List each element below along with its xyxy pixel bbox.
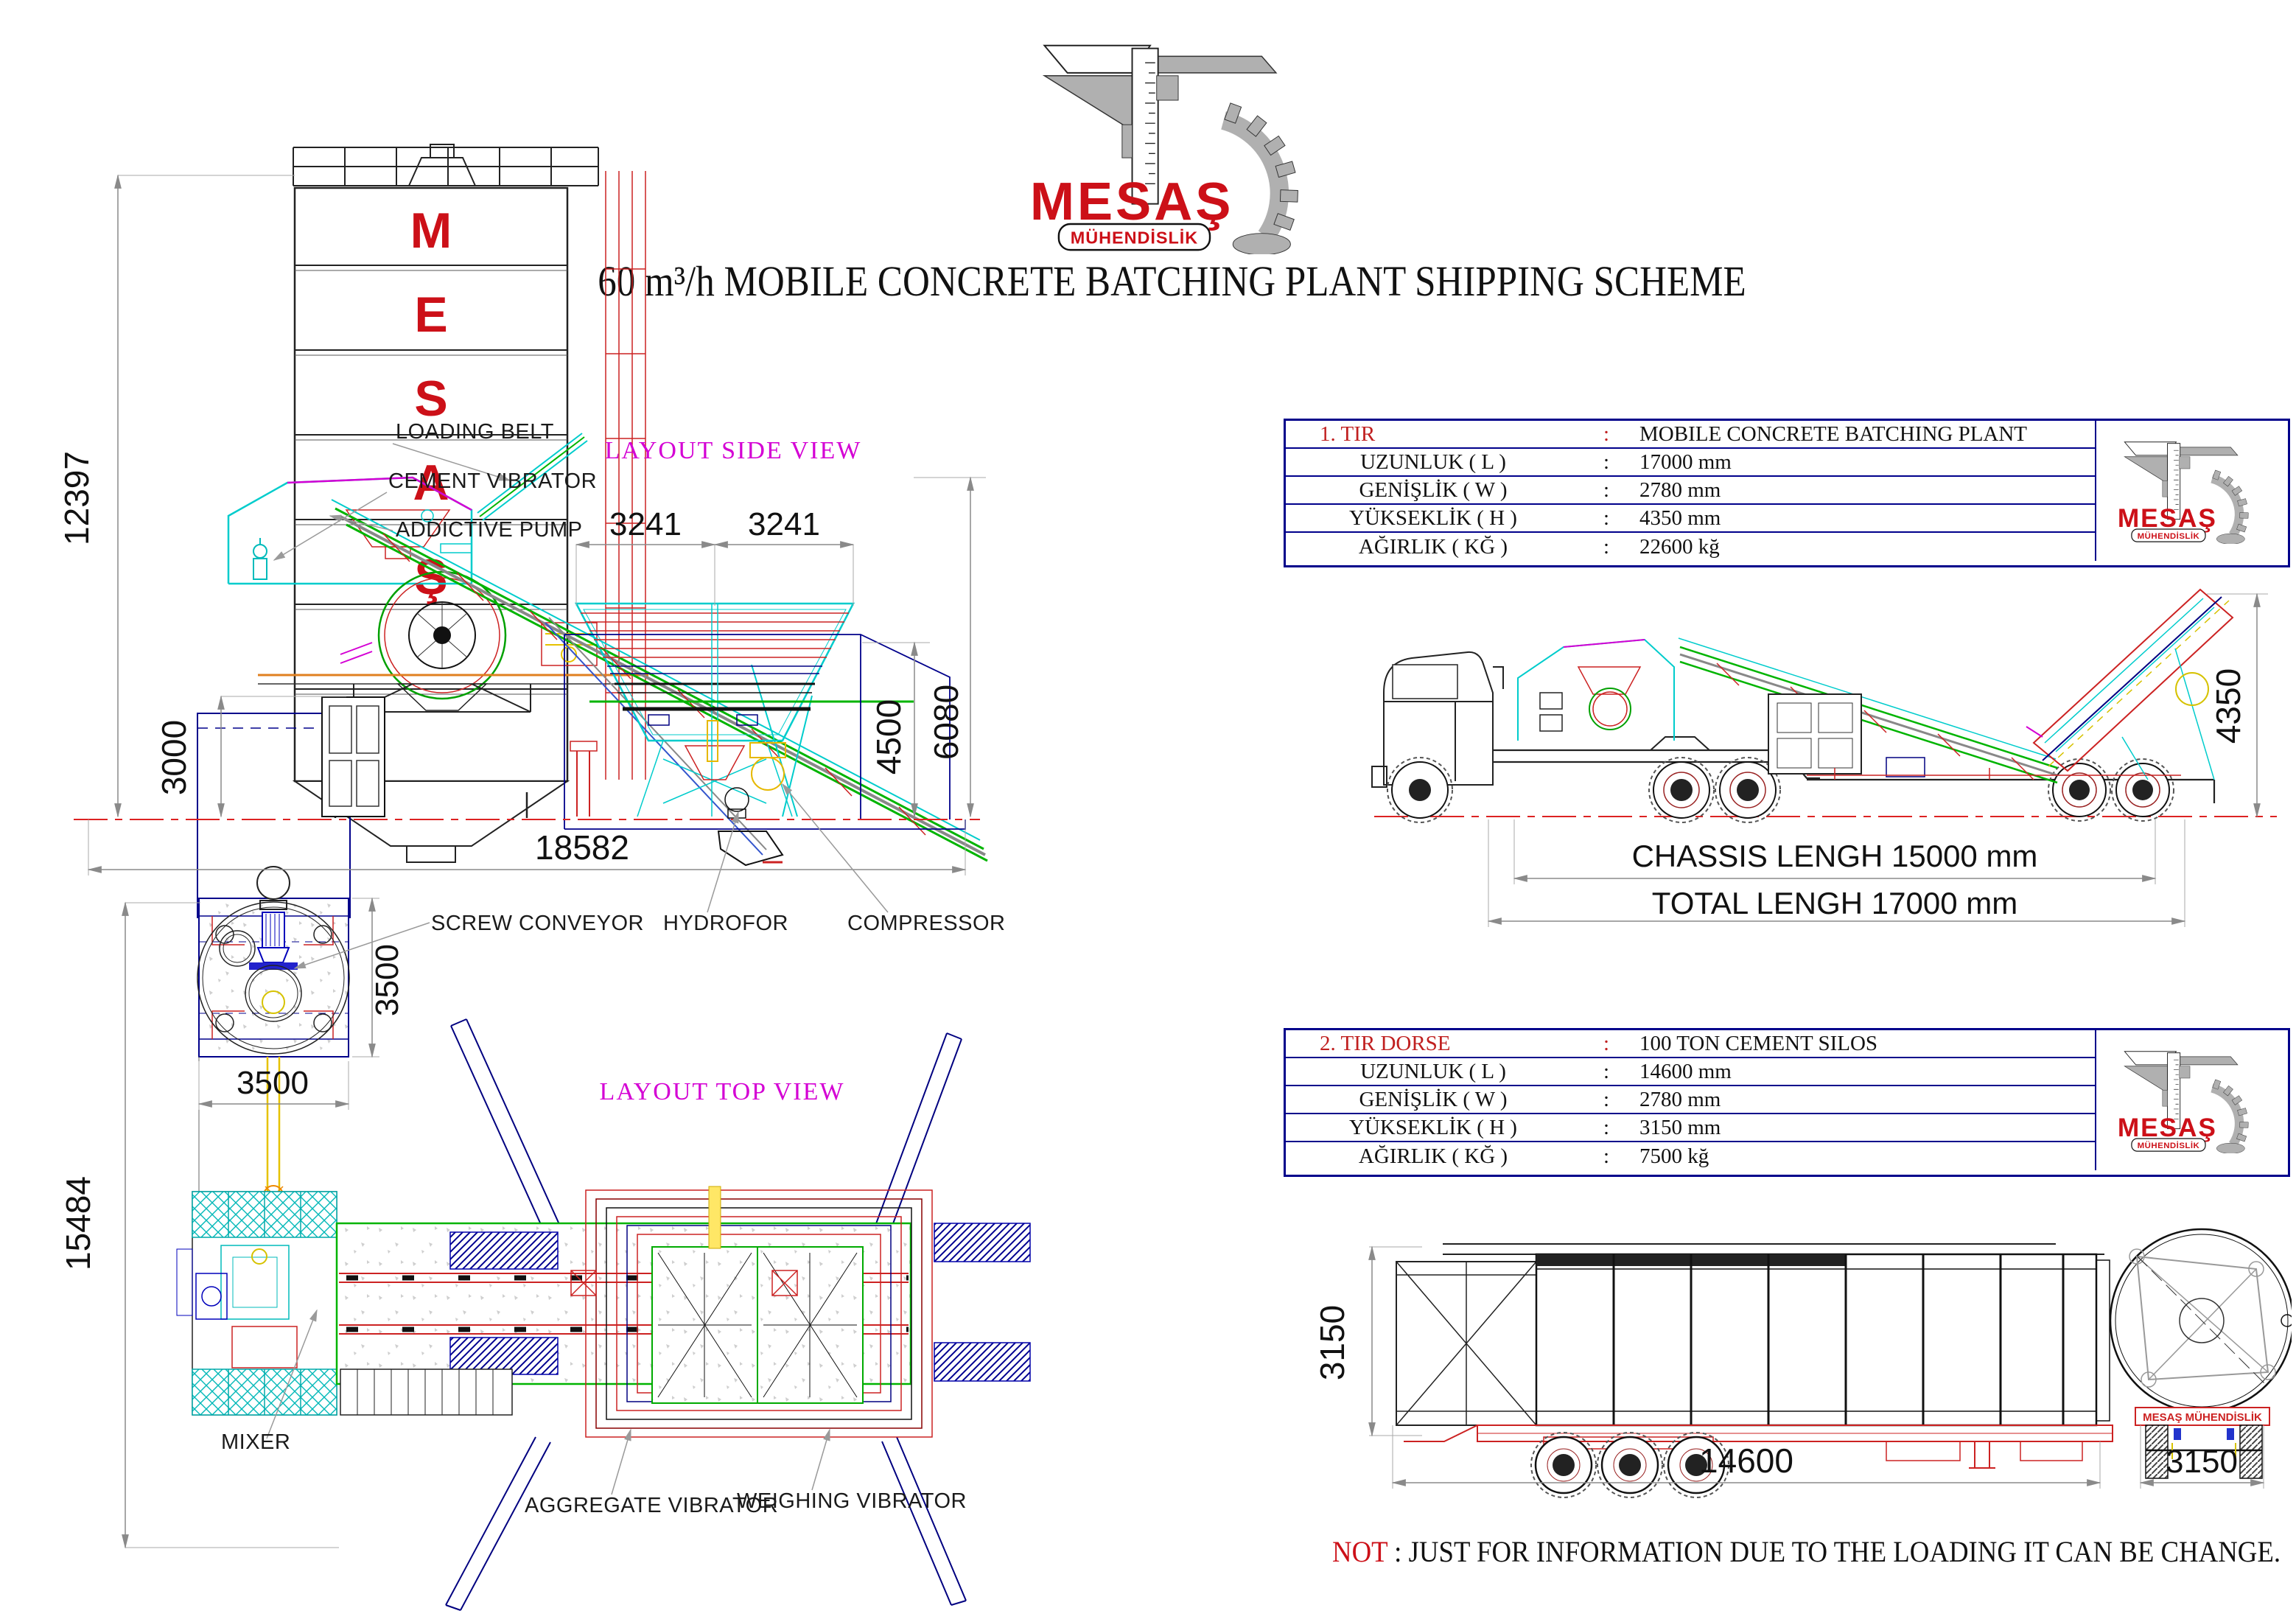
mixer-block-plan: [177, 1192, 337, 1415]
note-separator: :: [1387, 1535, 1409, 1568]
tir1-logo-cell: [2095, 421, 2283, 561]
cement-vibrator-symbol: [253, 538, 267, 579]
company-logo: [1024, 38, 1334, 254]
trailer-brand-text: MESAŞ MÜHENDİSLİK: [2143, 1411, 2262, 1424]
trailer-rear-width-dim: 3150: [2166, 1444, 2238, 1480]
tir1-row0-label: 1. TIR: [1286, 421, 1581, 449]
label-weighing-vibrator: WEIGHING VIBRATOR: [737, 1489, 967, 1513]
label-mixer: MIXER: [221, 1430, 290, 1454]
svg-text:M: M: [410, 203, 452, 259]
svg-text:S: S: [414, 371, 447, 427]
truck-total-dim: TOTAL LENGH 17000 mm: [1652, 886, 2017, 920]
tir2-row0-label: 2. TIR DORSE: [1286, 1030, 1581, 1058]
tir2-row3-label: YÜKSEKLİK ( H ): [1286, 1114, 1581, 1142]
tir1-row3-sep: :: [1581, 505, 1632, 533]
dim-plant-height: 6080: [927, 685, 965, 760]
tir2-row2-value: 2780 mm: [1632, 1086, 2095, 1114]
tir2-logo: [2115, 1048, 2266, 1153]
drawing-sheet: MESAŞ MÜHENDİSLİK 60 m³/h MOBILE CONCRET…: [0, 0, 2296, 1622]
dim-bin-span-right: 3241: [748, 506, 820, 542]
caption-top-view: LAYOUT TOP VIEW: [600, 1078, 845, 1105]
note-text: JUST FOR INFORMATION DUE TO THE LOADING …: [1409, 1535, 2281, 1568]
tir2-row4-label: AĞIRLIK ( KĞ ): [1286, 1142, 1581, 1170]
silo-trailer-side: [1396, 1244, 2113, 1468]
tir2-row3-sep: :: [1581, 1114, 1632, 1142]
dim-pad-width: 3500: [237, 1065, 309, 1101]
layout-views-drawing: M E S A Ş: [29, 125, 1061, 1614]
note-prefix: NOT: [1332, 1535, 1387, 1568]
tir1-logo: [2115, 438, 2266, 544]
tir1-row2-value: 2780 mm: [1632, 477, 2095, 505]
tir2-row2-label: GENİŞLİK ( W ): [1286, 1086, 1581, 1114]
tir1-spec-table: 1. TIR : MOBILE CONCRETE BATCHING PLANT …: [1284, 419, 2290, 567]
tir1-row2-label: GENİŞLİK ( W ): [1286, 477, 1581, 505]
tir2-row1-value: 14600 mm: [1632, 1058, 2095, 1086]
tir1-row0-value: MOBILE CONCRETE BATCHING PLANT: [1632, 421, 2095, 449]
hydrofor-machine: [725, 788, 749, 818]
truck-height-dim: 4350: [2209, 668, 2247, 744]
truck-chassis-dim: CHASSIS LENGH 15000 mm: [1632, 839, 2038, 873]
label-cement-vibrator: CEMENT VIBRATOR: [388, 469, 597, 493]
trailer-length-dim: 14600: [1699, 1441, 1793, 1480]
tir1-row4-value: 22600 kğ: [1632, 533, 2095, 561]
tir2-row2-sep: :: [1581, 1086, 1632, 1114]
trailer-height-dim: 3150: [1313, 1305, 1351, 1380]
label-screw-conveyor: SCREW CONVEYOR: [431, 912, 644, 935]
dim-plan-width: 15484: [59, 1176, 97, 1270]
svg-text:E: E: [414, 287, 447, 343]
tir2-row0-value: 100 TON CEMENT SILOS: [1632, 1030, 2095, 1058]
dim-bin-span-left: 3241: [609, 506, 682, 542]
tir1-row3-label: YÜKSEKLİK ( H ): [1286, 505, 1581, 533]
silo-pipes: [606, 171, 645, 780]
label-addictive-pump: ADDICTIVE PUMP: [396, 518, 583, 542]
tir2-row4-value: 7500 kğ: [1632, 1142, 2095, 1170]
tir1-row1-value: 17000 mm: [1632, 449, 2095, 477]
truck-shipping-drawing: 4350 CHASSIS LENGH 15000 mm TOTAL LENGH …: [1363, 575, 2292, 929]
tir1-row1-label: UZUNLUK ( L ): [1286, 449, 1581, 477]
label-hydrofor: HYDROFOR: [663, 912, 788, 935]
trailer-silo-drawing: MESAŞ MÜHENDİSLİK 3150 14600 3150: [1312, 1201, 2292, 1511]
tir1-row3-value: 4350 mm: [1632, 505, 2095, 533]
caption-side-view: LAYOUT SIDE VIEW: [605, 437, 862, 464]
tir1-row4-label: AĞIRLIK ( KĞ ): [1286, 533, 1581, 561]
tir2-row1-label: UZUNLUK ( L ): [1286, 1058, 1581, 1086]
dim-total-length: 18582: [535, 828, 629, 867]
tir1-row1-sep: :: [1581, 449, 1632, 477]
silo-rear-view: MESAŞ MÜHENDİSLİK: [2110, 1229, 2292, 1478]
silo-pad-plan: [197, 867, 349, 1244]
dim-pad-depth: 3500: [369, 944, 405, 1016]
dim-total-height: 12397: [57, 451, 96, 545]
tir2-row1-sep: :: [1581, 1058, 1632, 1086]
loaded-plant-wireframe: [1518, 590, 2233, 783]
tir2-row3-value: 3150 mm: [1632, 1114, 2095, 1142]
dim-bin-height: 4500: [869, 699, 908, 775]
tir2-row0-sep: :: [1581, 1030, 1632, 1058]
tir2-logo-cell: [2095, 1030, 2283, 1170]
dim-foundation-height: 3000: [155, 720, 193, 795]
label-loading-belt: LOADING BELT: [396, 420, 554, 444]
tir1-row4-sep: :: [1581, 533, 1632, 561]
tir2-row4-sep: :: [1581, 1142, 1632, 1170]
footer-note: NOT : JUST FOR INFORMATION DUE TO THE LO…: [1332, 1534, 2296, 1569]
tir1-row2-sep: :: [1581, 477, 1632, 505]
tir2-spec-table: 2. TIR DORSE : 100 TON CEMENT SILOS UZUN…: [1284, 1028, 2290, 1177]
tir1-row0-sep: :: [1581, 421, 1632, 449]
label-compressor: COMPRESSOR: [847, 912, 1005, 935]
